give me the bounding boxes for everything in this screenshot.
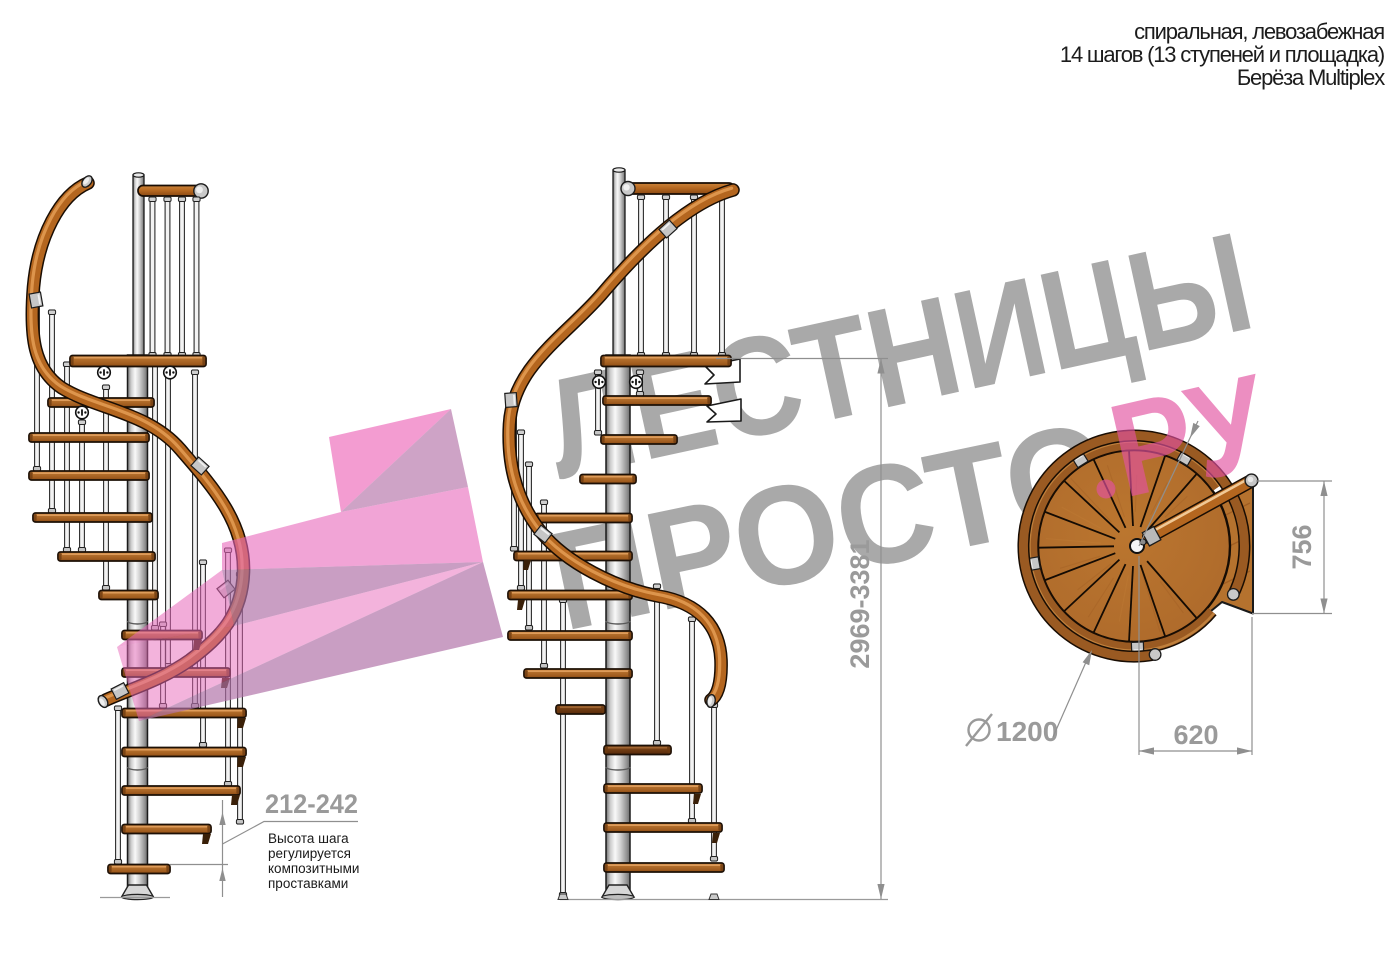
svg-text:проставками: проставками: [268, 876, 348, 891]
svg-text:регулируется: регулируется: [268, 846, 351, 861]
svg-text:1200: 1200: [996, 716, 1058, 747]
svg-text:756: 756: [1287, 524, 1317, 569]
svg-text:2969-3381: 2969-3381: [845, 539, 875, 668]
svg-text:212-242: 212-242: [265, 789, 358, 819]
svg-text:композитными: композитными: [268, 861, 359, 876]
svg-text:620: 620: [1173, 720, 1218, 750]
svg-text:Высота шага: Высота шага: [268, 831, 349, 846]
